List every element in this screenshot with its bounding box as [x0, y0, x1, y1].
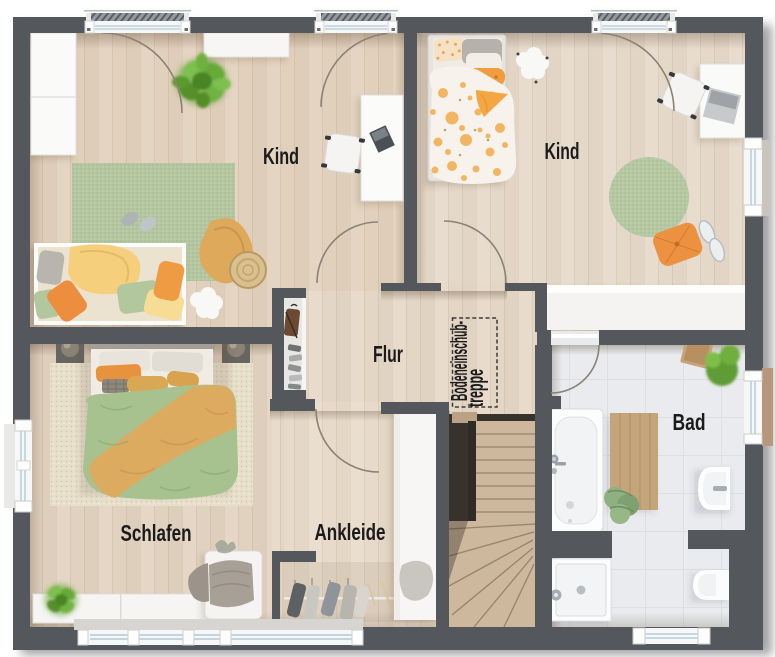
svg-text:treppe: treppe	[462, 369, 488, 407]
svg-text:Kind: Kind	[263, 143, 299, 169]
svg-text:Kind: Kind	[545, 138, 580, 164]
svg-text:Flur: Flur	[373, 341, 403, 367]
svg-text:Bad: Bad	[673, 409, 706, 435]
svg-text:Schlafen: Schlafen	[121, 520, 192, 546]
svg-text:Ankleide: Ankleide	[315, 519, 386, 545]
